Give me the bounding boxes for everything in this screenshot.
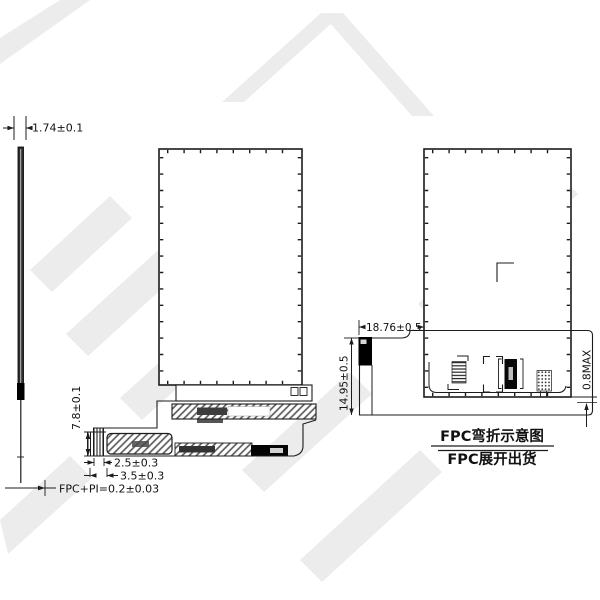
part-number-label [228, 407, 270, 417]
micro-label [179, 446, 215, 453]
caption-bend-diagram: FPC弯折示意图 [440, 427, 544, 445]
connector-offset-dim-label: 18.76±0.5 [366, 322, 422, 334]
technical-drawing-page: 1.74±0.1 FPC+PI=0.2±0.03 [0, 0, 600, 600]
bend-view [344, 149, 597, 451]
fold-width-dim-label: 2.5±0.3 [114, 457, 158, 470]
fold-pitch-dim-label: 3.5±0.3 [120, 470, 164, 483]
fpc-height-dim-label-right: 14.95±0.5 [339, 355, 351, 411]
micro-label [361, 340, 367, 345]
micro-label [197, 420, 223, 424]
arrowhead [8, 126, 15, 131]
arrowhead [104, 460, 111, 464]
micro-label [197, 408, 227, 416]
arrowhead [86, 432, 91, 439]
pad-array [537, 371, 552, 392]
caption-unfolded-shipping: FPC展开出货 [447, 450, 537, 468]
micro-label [132, 441, 149, 447]
fpc-pi-dim-label: FPC+PI=0.2±0.03 [59, 483, 159, 496]
coil-component [452, 362, 466, 384]
fpc-bond-area [17, 383, 25, 400]
arrowhead [88, 460, 95, 464]
side-thickness-dim-label: 1.74±0.1 [32, 122, 83, 135]
side-view [3, 116, 56, 496]
arrowhead [359, 325, 366, 329]
drawing-canvas: 1.74±0.1 FPC+PI=0.2±0.03 [0, 0, 600, 600]
arrowhead [86, 449, 91, 456]
fpc-height-dim-label: 7.8±0.1 [70, 386, 83, 430]
arrowhead [107, 473, 114, 477]
panel-outline [159, 149, 302, 385]
bend-thickness-dim-label: 0.8MAX [582, 350, 594, 390]
micro-label [509, 367, 514, 380]
arrowhead [584, 403, 588, 410]
micro-label [270, 448, 283, 453]
arrowhead [349, 338, 353, 345]
